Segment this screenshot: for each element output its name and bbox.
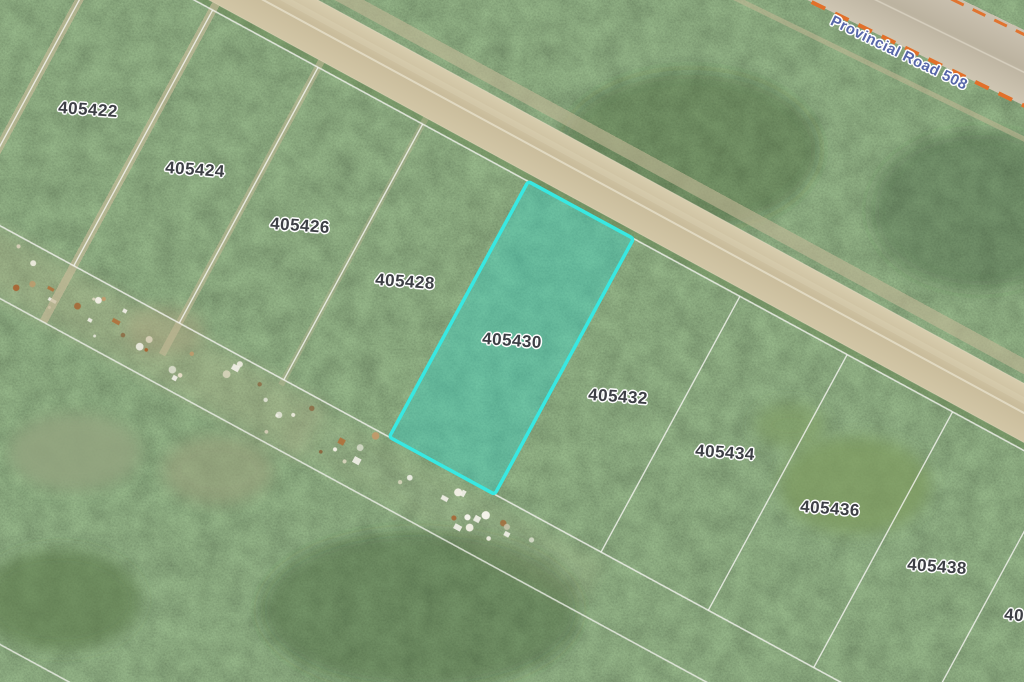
- parcel-label-highlighted: 405430: [482, 329, 543, 353]
- parcel-label: 405438: [907, 555, 968, 579]
- satellite-map-viewport[interactable]: 405422 405424 405426 405428 405430 40543…: [0, 0, 1024, 682]
- parcel-label: 405432: [588, 385, 649, 409]
- parcel-label: 405428: [375, 270, 436, 294]
- parcel-label: 405426: [270, 214, 331, 238]
- parcel-label: 405422: [58, 98, 119, 122]
- parcel-label: 405436: [800, 497, 861, 521]
- parcel-label: 405434: [695, 441, 756, 465]
- parcel-label: 405424: [165, 158, 226, 182]
